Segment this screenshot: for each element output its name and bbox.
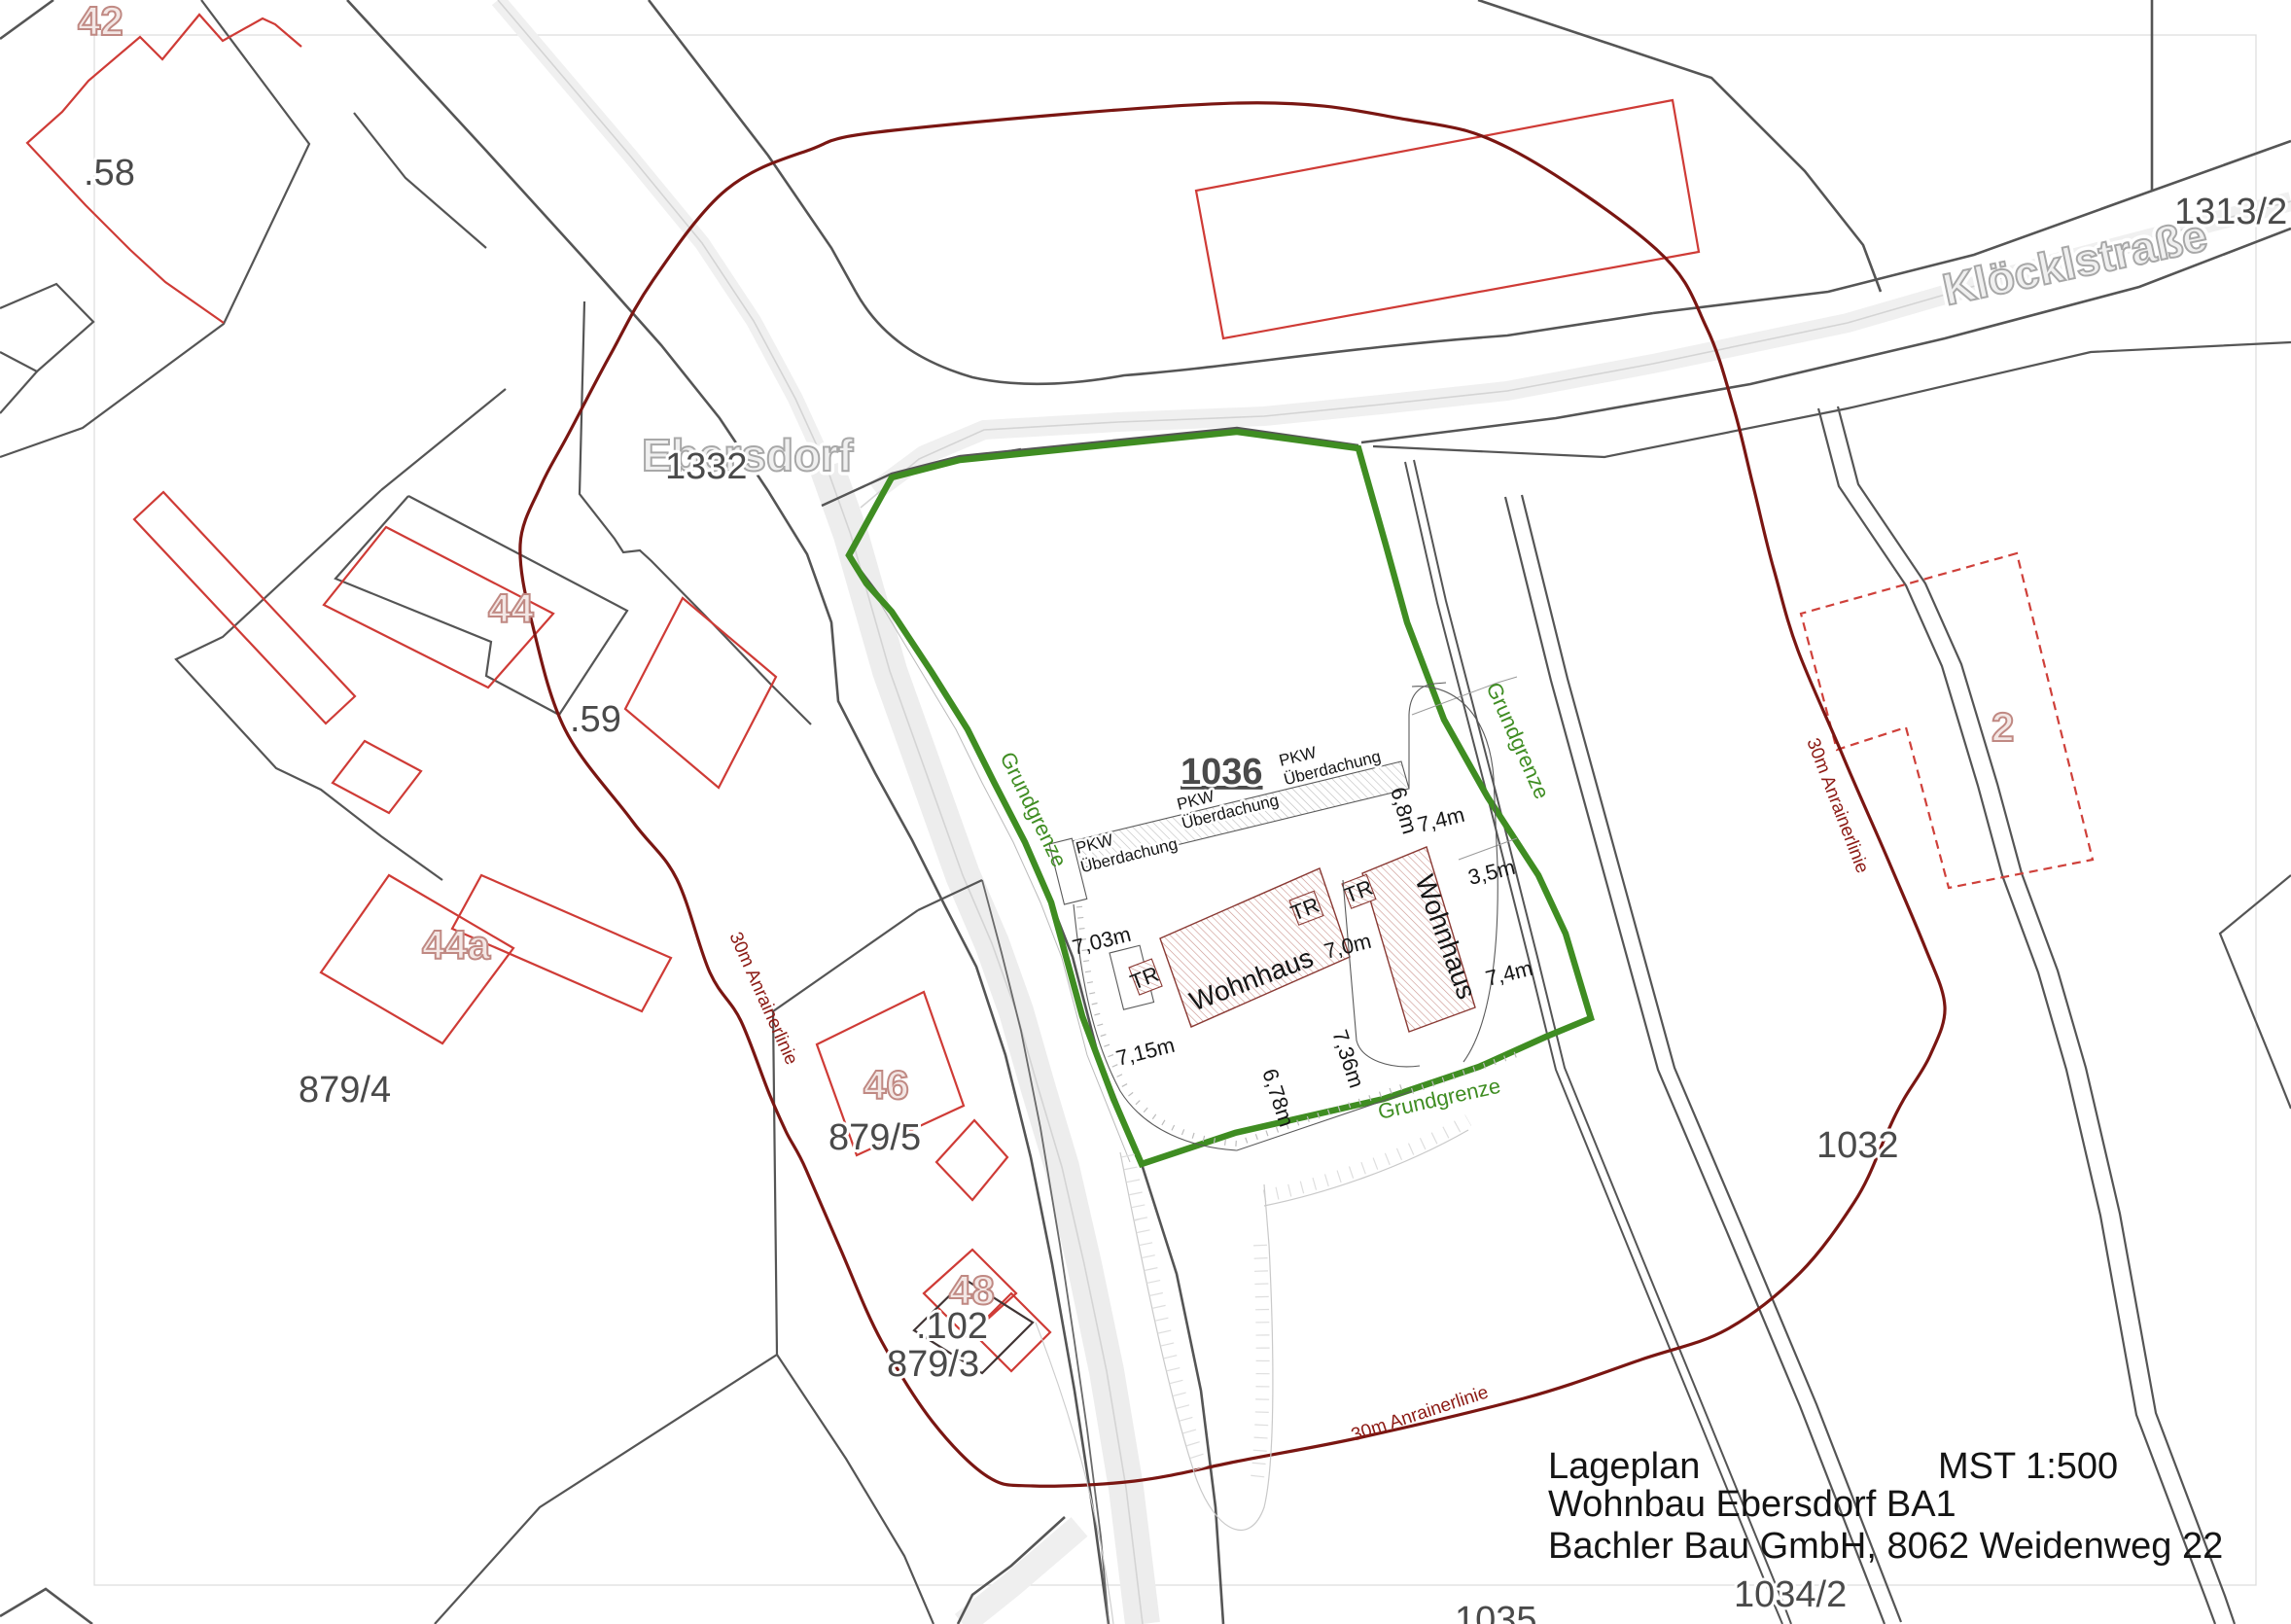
svg-text:1035: 1035 (1455, 1600, 1537, 1624)
svg-text:46: 46 (864, 1062, 909, 1108)
svg-text:879/3: 879/3 (887, 1344, 979, 1385)
svg-text:42: 42 (78, 0, 123, 44)
svg-text:1034/2: 1034/2 (1734, 1574, 1847, 1615)
svg-text:Lageplan: Lageplan (1548, 1446, 1700, 1487)
svg-text:.102: .102 (916, 1306, 988, 1347)
svg-text:44a: 44a (422, 922, 491, 968)
svg-text:Wohnbau Ebersdorf BA1: Wohnbau Ebersdorf BA1 (1548, 1484, 1956, 1525)
svg-text:MST 1:500: MST 1:500 (1938, 1446, 2118, 1487)
svg-text:44: 44 (488, 585, 534, 631)
svg-text:1313/2: 1313/2 (2174, 192, 2287, 232)
svg-text:.58: .58 (84, 153, 135, 194)
svg-text:2: 2 (1991, 704, 2014, 750)
svg-text:879/4: 879/4 (299, 1070, 391, 1111)
svg-text:1032: 1032 (1816, 1125, 1899, 1166)
svg-text:879/5: 879/5 (828, 1117, 921, 1158)
svg-text:.59: .59 (570, 699, 621, 740)
svg-text:1036: 1036 (1181, 752, 1263, 793)
svg-text:1332: 1332 (665, 446, 748, 487)
svg-text:Bachler Bau GmbH, 8062 Weidenw: Bachler Bau GmbH, 8062 Weidenweg 22 (1548, 1526, 2223, 1567)
